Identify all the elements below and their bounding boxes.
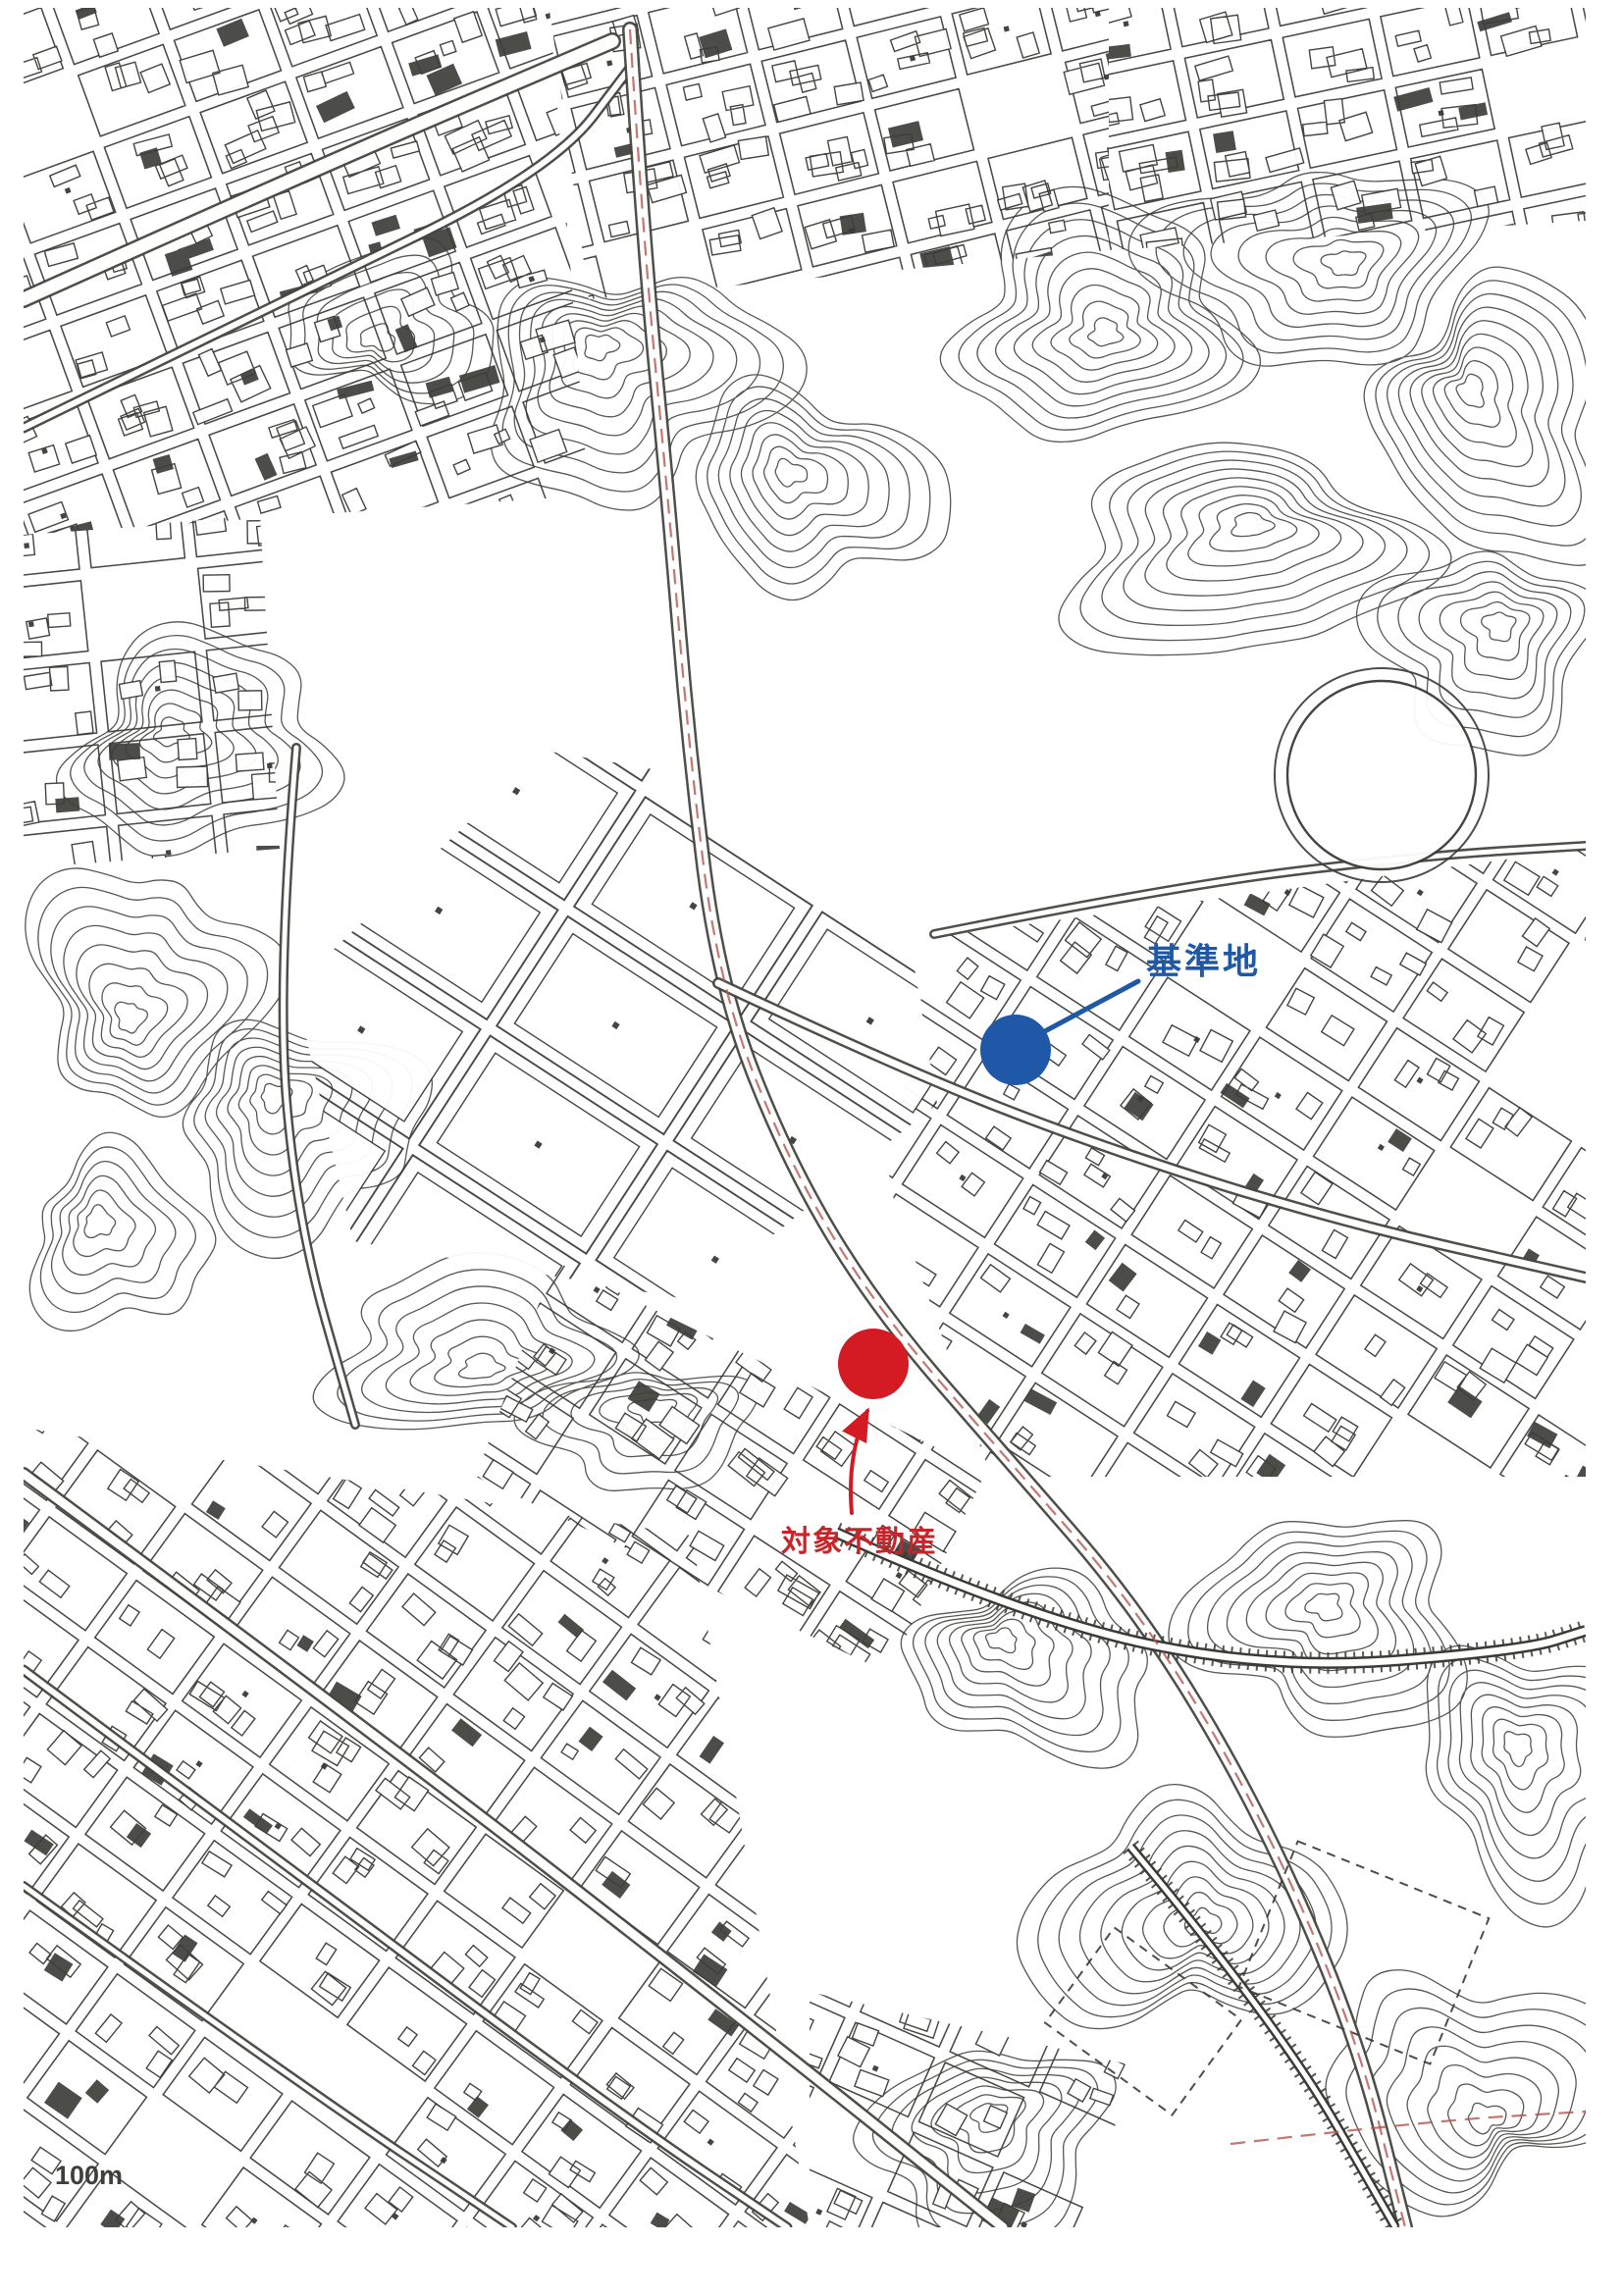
subject-leader-line	[851, 1411, 867, 1513]
reference-site-marker	[980, 1015, 1051, 1085]
reference-site-label: 基準地	[1146, 941, 1261, 981]
subject-property-label: 対象不動産	[781, 1526, 938, 1558]
subject-property-marker	[838, 1329, 909, 1399]
map-scale-label: 100m	[55, 2161, 123, 2190]
map-artwork	[0, 0, 1623, 2296]
map-page: 基準地 対象不動産 100m	[0, 0, 1623, 2296]
city-planning-map: 基準地 対象不動産 100m	[0, 0, 1623, 2296]
reference-leader-line	[1043, 981, 1138, 1032]
